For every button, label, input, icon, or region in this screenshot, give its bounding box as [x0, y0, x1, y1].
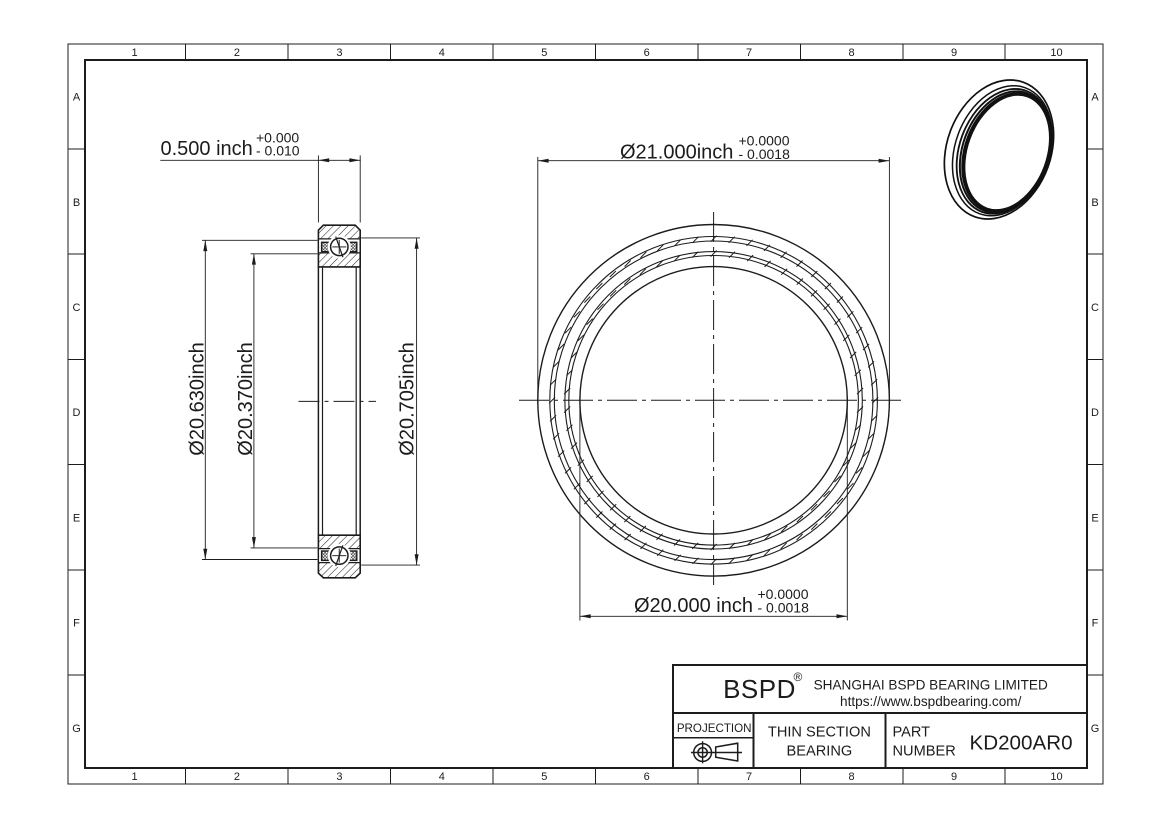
svg-text:7: 7 [746, 771, 752, 783]
svg-text:D: D [73, 407, 81, 419]
svg-text:A: A [1091, 92, 1099, 104]
svg-text:Ø21.000inch: Ø21.000inch [620, 141, 733, 163]
svg-text:NUMBER: NUMBER [893, 743, 956, 759]
svg-text:2: 2 [234, 47, 240, 59]
svg-text:Ø20.370inch: Ø20.370inch [235, 342, 257, 455]
svg-text:7: 7 [746, 47, 752, 59]
svg-text:C: C [1091, 302, 1099, 314]
svg-text:SHANGHAI BSPD BEARING LIMITED: SHANGHAI BSPD BEARING LIMITED [814, 678, 1048, 693]
svg-text:- 0.010: - 0.010 [256, 143, 300, 159]
svg-text:THIN SECTION: THIN SECTION [768, 724, 871, 740]
svg-text:Ø20.705inch: Ø20.705inch [397, 342, 419, 455]
svg-text:Ø20.000 inch: Ø20.000 inch [634, 595, 753, 617]
svg-text:D: D [1091, 407, 1099, 419]
svg-text:®: ® [794, 670, 803, 684]
svg-text:- 0.0018: - 0.0018 [758, 599, 810, 615]
svg-text:B: B [1091, 197, 1098, 209]
svg-text:6: 6 [644, 771, 650, 783]
svg-text:4: 4 [439, 47, 445, 59]
svg-text:10: 10 [1050, 771, 1062, 783]
svg-text:10: 10 [1050, 47, 1062, 59]
svg-text:B: B [73, 197, 80, 209]
svg-text:KD200AR0: KD200AR0 [970, 731, 1073, 754]
svg-text:G: G [1091, 723, 1100, 735]
svg-text:8: 8 [849, 47, 855, 59]
svg-text:E: E [73, 512, 80, 524]
svg-text:- 0.0018: - 0.0018 [739, 146, 791, 162]
svg-text:F: F [73, 618, 80, 630]
svg-text:1: 1 [131, 47, 137, 59]
svg-text:4: 4 [439, 771, 445, 783]
svg-text:BSPD: BSPD [723, 674, 796, 704]
svg-text:E: E [1091, 512, 1098, 524]
svg-text:0.500 inch: 0.500 inch [161, 138, 253, 160]
svg-text:Ø20.630inch: Ø20.630inch [186, 342, 208, 455]
svg-text:9: 9 [951, 771, 957, 783]
svg-text:https://www.bspdbearing.com/: https://www.bspdbearing.com/ [840, 694, 1022, 709]
svg-text:G: G [72, 723, 81, 735]
svg-text:1: 1 [131, 771, 137, 783]
svg-text:3: 3 [336, 771, 342, 783]
svg-text:5: 5 [541, 771, 547, 783]
svg-text:3: 3 [336, 47, 342, 59]
svg-text:A: A [73, 92, 81, 104]
svg-text:5: 5 [541, 47, 547, 59]
svg-text:PART: PART [893, 724, 931, 740]
svg-text:C: C [73, 302, 81, 314]
svg-text:PROJECTION: PROJECTION [677, 722, 752, 735]
svg-text:8: 8 [849, 771, 855, 783]
svg-text:2: 2 [234, 771, 240, 783]
svg-text:6: 6 [644, 47, 650, 59]
svg-text:BEARING: BEARING [787, 743, 853, 759]
svg-text:F: F [1092, 618, 1099, 630]
svg-text:9: 9 [951, 47, 957, 59]
